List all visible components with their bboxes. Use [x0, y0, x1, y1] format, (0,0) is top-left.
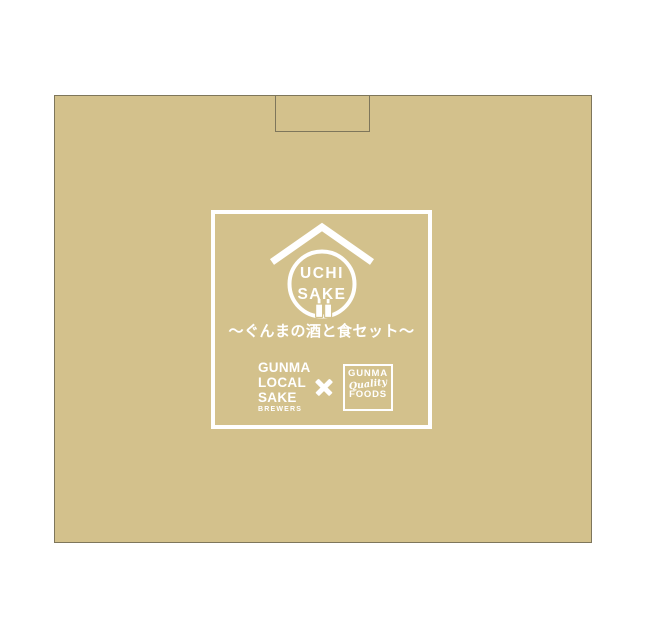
collab-x-icon: [313, 376, 335, 398]
brand-line-gunma: GUNMA: [258, 360, 311, 375]
brand-line-brewers: BREWERS: [258, 406, 311, 414]
brand-line-local: LOCAL: [258, 375, 311, 390]
emblem-text-uchi: UCHI: [300, 265, 344, 282]
emblem-text-sake: SAKE: [297, 286, 346, 303]
gunma-local-sake-brewers-logo: GUNMA LOCAL SAKE BREWERS: [258, 360, 311, 414]
subtitle-text: 〜ぐんまの酒と食セット〜: [215, 322, 428, 340]
uchi-sake-emblem: UCHI SAKE: [267, 219, 377, 319]
house-roof-icon: [272, 227, 372, 262]
brand-line-sake: SAKE: [258, 390, 311, 405]
logo-square-frame: UCHI SAKE 〜ぐんまの酒と食セット〜 GUNMA LOCAL SAKE …: [211, 210, 432, 429]
gift-box-front: UCHI SAKE 〜ぐんまの酒と食セット〜 GUNMA LOCAL SAKE …: [54, 95, 592, 543]
box-lid-notch: [275, 96, 370, 132]
gunma-quality-foods-badge: GUNMA Quality FOODS: [343, 364, 393, 411]
product-image: UCHI SAKE 〜ぐんまの酒と食セット〜 GUNMA LOCAL SAKE …: [0, 0, 651, 635]
